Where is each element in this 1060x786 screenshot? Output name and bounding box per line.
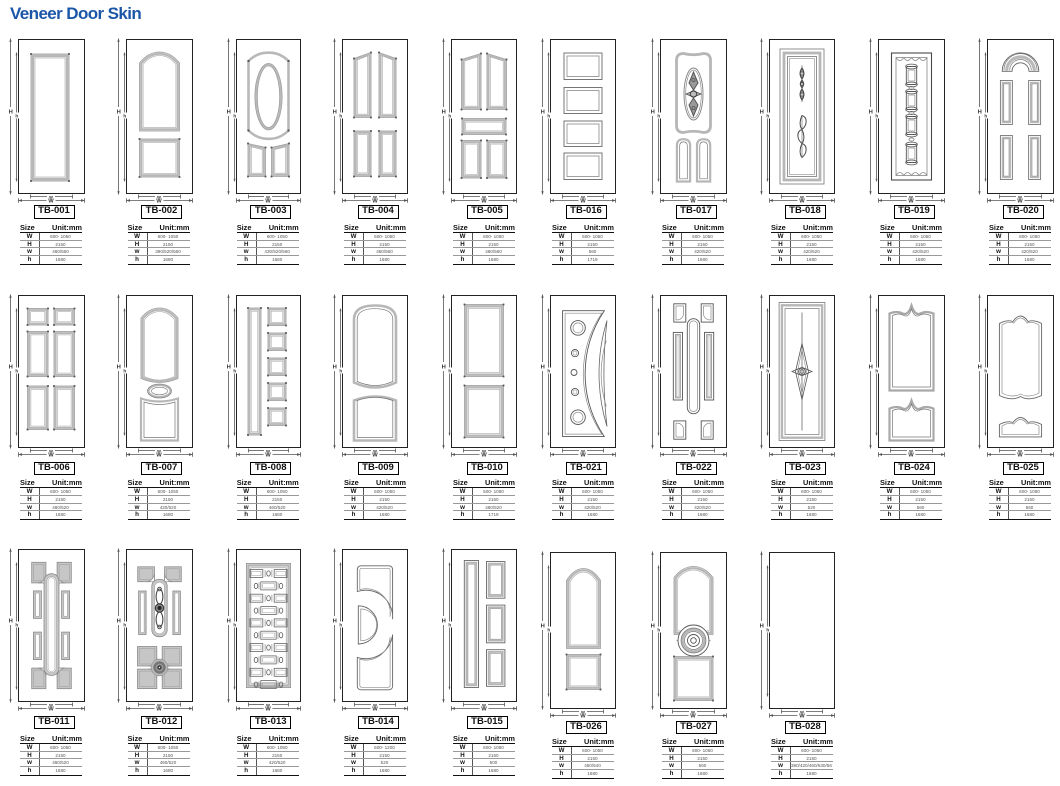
svg-text:H: H [760, 623, 764, 629]
svg-text:H: H [9, 109, 13, 115]
svg-text:H: H [869, 364, 873, 370]
svg-text:W: W [156, 199, 162, 205]
svg-text:h: h [547, 369, 550, 374]
svg-text:H: H [869, 109, 873, 115]
svg-text:h: h [233, 623, 236, 628]
svg-text:W: W [799, 199, 805, 205]
svg-text:h: h [15, 623, 18, 628]
svg-text:H: H [116, 364, 120, 370]
svg-text:H: H [651, 364, 655, 370]
svg-text:W: W [372, 707, 378, 713]
svg-text:H: H [116, 109, 120, 115]
svg-text:W: W [580, 453, 586, 459]
svg-text:W: W [690, 714, 696, 720]
svg-text:H: H [651, 109, 655, 115]
svg-text:H: H [333, 618, 337, 624]
svg-text:W: W [481, 453, 487, 459]
svg-text:H: H [226, 618, 230, 624]
svg-text:h: h [547, 114, 550, 119]
svg-text:h: h [875, 114, 878, 119]
svg-text:h: h [15, 114, 18, 119]
svg-text:h: h [766, 628, 769, 633]
svg-text:h: h [657, 628, 660, 633]
svg-text:H: H [9, 364, 13, 370]
svg-text:W: W [580, 714, 586, 720]
svg-text:H: H [226, 109, 230, 115]
svg-text:h: h [766, 369, 769, 374]
svg-text:H: H [442, 618, 446, 624]
svg-text:W: W [690, 199, 696, 205]
svg-text:W: W [48, 707, 54, 713]
svg-text:h: h [657, 114, 660, 119]
svg-text:h: h [339, 114, 342, 119]
svg-text:H: H [442, 364, 446, 370]
svg-text:W: W [690, 453, 696, 459]
svg-text:h: h [448, 114, 451, 119]
svg-text:W: W [156, 707, 162, 713]
svg-text:W: W [48, 199, 54, 205]
svg-text:H: H [978, 364, 982, 370]
svg-text:W: W [799, 714, 805, 720]
svg-text:W: W [265, 199, 271, 205]
svg-text:W: W [48, 453, 54, 459]
svg-text:h: h [339, 369, 342, 374]
svg-text:W: W [265, 707, 271, 713]
svg-text:H: H [541, 109, 545, 115]
svg-text:H: H [541, 623, 545, 629]
svg-text:h: h [339, 623, 342, 628]
svg-text:h: h [123, 114, 126, 119]
svg-text:H: H [9, 618, 13, 624]
svg-text:W: W [372, 199, 378, 205]
svg-text:h: h [123, 623, 126, 628]
svg-text:W: W [481, 199, 487, 205]
svg-text:H: H [651, 623, 655, 629]
svg-text:h: h [766, 114, 769, 119]
svg-text:h: h [875, 369, 878, 374]
svg-text:h: h [448, 623, 451, 628]
svg-text:H: H [978, 109, 982, 115]
svg-text:h: h [984, 114, 987, 119]
svg-text:H: H [442, 109, 446, 115]
svg-text:h: h [233, 369, 236, 374]
svg-text:H: H [226, 364, 230, 370]
svg-text:W: W [908, 453, 914, 459]
svg-text:H: H [541, 364, 545, 370]
svg-text:h: h [448, 369, 451, 374]
svg-text:W: W [908, 199, 914, 205]
svg-text:H: H [333, 364, 337, 370]
svg-text:h: h [547, 628, 550, 633]
svg-text:W: W [372, 453, 378, 459]
svg-text:h: h [233, 114, 236, 119]
svg-text:H: H [333, 109, 337, 115]
svg-text:W: W [265, 453, 271, 459]
svg-text:H: H [760, 109, 764, 115]
svg-text:W: W [481, 707, 487, 713]
svg-text:H: H [116, 618, 120, 624]
svg-text:W: W [156, 453, 162, 459]
svg-text:W: W [1017, 199, 1023, 205]
svg-text:h: h [657, 369, 660, 374]
svg-text:W: W [799, 453, 805, 459]
svg-text:h: h [984, 369, 987, 374]
svg-text:h: h [123, 369, 126, 374]
svg-text:H: H [760, 364, 764, 370]
svg-text:W: W [580, 199, 586, 205]
svg-text:h: h [15, 369, 18, 374]
svg-text:W: W [1017, 453, 1023, 459]
